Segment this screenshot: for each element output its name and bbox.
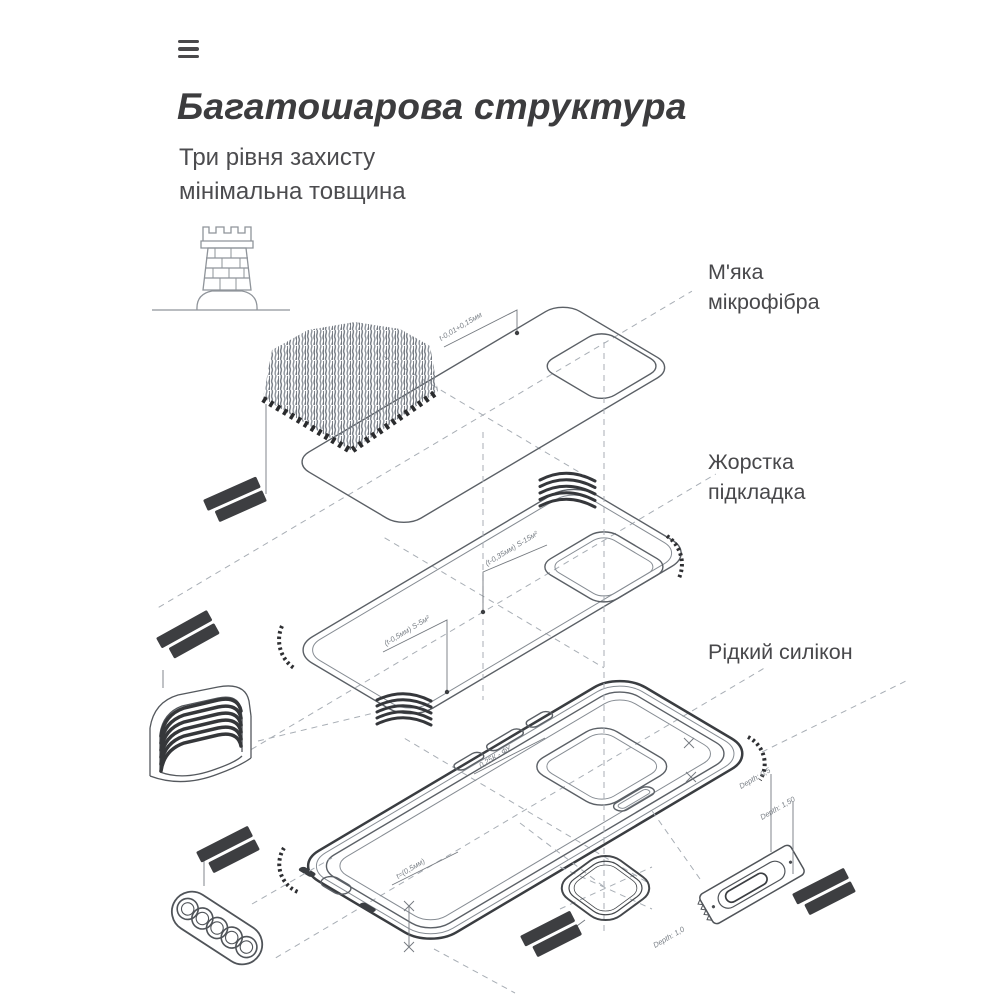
castle-tower-icon	[152, 227, 290, 310]
label-block	[196, 826, 260, 876]
dim-microfiber-thickness: t-0,01+0,15мм	[437, 310, 483, 343]
microfiber-fuzz-detail	[263, 322, 438, 451]
corner-springs-bottom	[377, 694, 431, 725]
corner-bumper-part	[150, 686, 251, 782]
dim-depth-c: Depth: 1,0	[652, 924, 687, 950]
dim-lining-a: (t-0,35мм) S-15м²	[483, 529, 540, 568]
label-block	[520, 911, 582, 960]
layer-hard-lining	[140, 408, 824, 813]
dim-case-b: t=(0,5мм)	[394, 856, 427, 881]
dim-depth-a: Depth: 0,5	[738, 765, 773, 791]
camera-cutout	[540, 329, 664, 402]
side-button-plate-part	[695, 844, 806, 928]
corner-hatch	[279, 848, 298, 892]
dim-depth-b: Depth: 1,50	[759, 794, 798, 822]
product-infographic-page: Багатошарова структура Три рівня захисту…	[0, 0, 1000, 1000]
dimension-leaders	[163, 310, 793, 952]
button-rail-part	[164, 884, 270, 972]
layer-microfiber	[60, 233, 793, 668]
label-block	[156, 610, 220, 662]
exploded-case-diagram: t-0,01+0,15мм (t-0,35мм) S-15м² (t-0,5мм…	[0, 0, 1000, 1000]
dim-lining-b: (t-0,5мм) S-5м²	[382, 613, 431, 648]
label-block	[203, 476, 267, 524]
corner-hatch	[279, 626, 294, 668]
side-button-cutout	[610, 785, 657, 813]
